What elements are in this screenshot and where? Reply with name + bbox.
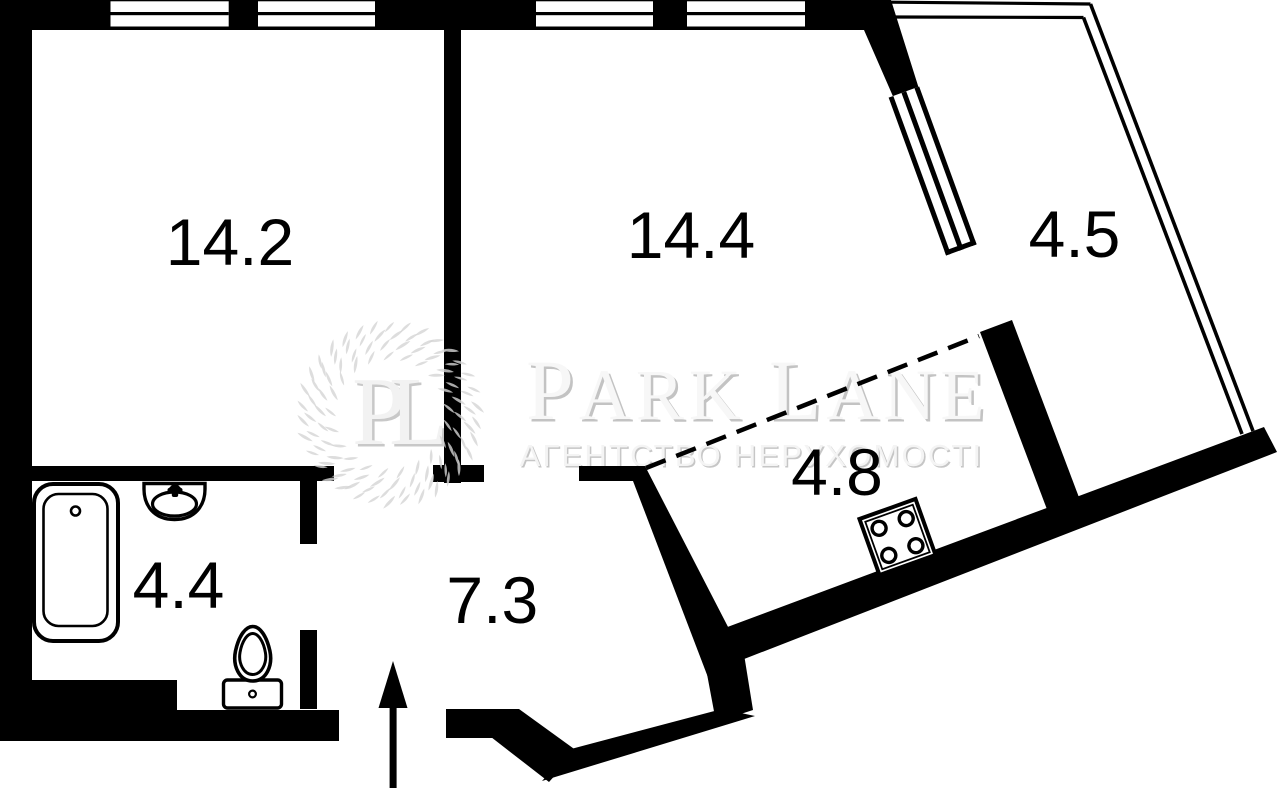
svg-text:4.8: 4.8	[791, 435, 883, 509]
svg-text:PL: PL	[352, 358, 443, 465]
svg-text:4.5: 4.5	[1029, 197, 1121, 271]
svg-text:4.4: 4.4	[133, 548, 225, 622]
svg-text:PARK LANE: PARK LANE	[526, 342, 989, 438]
svg-text:14.4: 14.4	[627, 198, 755, 272]
svg-text:14.2: 14.2	[166, 205, 294, 279]
svg-text:7.3: 7.3	[446, 563, 538, 637]
